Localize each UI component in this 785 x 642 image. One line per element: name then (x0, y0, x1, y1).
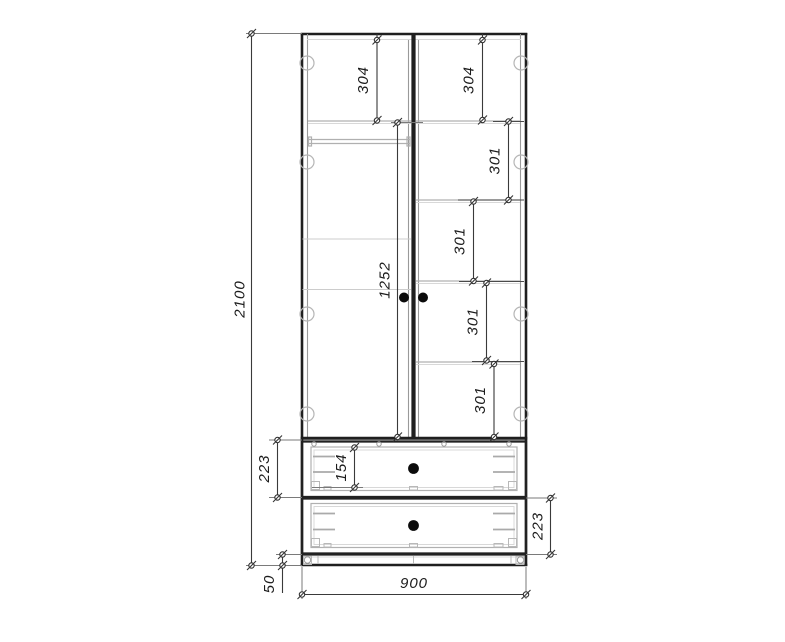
right-door-knob (418, 293, 428, 303)
dim-label-overall-height: 2100 (231, 280, 248, 318)
dim-label-top-drawer-height: 223 (256, 454, 273, 483)
dim-label-top-drawer-front: 154 (333, 453, 350, 481)
dim-top-drawer-height: 223 (256, 436, 302, 503)
wardrobe-technical-drawing: 2100 304 304 301 301 (0, 0, 785, 642)
dim-left-top-section: 304 (355, 34, 382, 125)
dim-right-section-2: 301 (451, 197, 524, 286)
foot-icon (304, 557, 310, 563)
dim-label-right-section-3: 301 (464, 307, 481, 335)
dim-right-section-3: 301 (464, 279, 524, 366)
dim-right-section-4: 301 (472, 360, 499, 442)
dim-overall-width: 900 (298, 567, 531, 599)
dim-door-height: 1252 (376, 118, 423, 442)
dim-label-bottom-drawer-height: 223 (529, 512, 546, 541)
drawing-canvas: 2100 304 304 301 301 (0, 0, 785, 642)
dim-label-plinth-height: 50 (261, 575, 278, 594)
bottom-drawer-knob (408, 520, 419, 531)
dim-label-left-top-section: 304 (355, 66, 372, 94)
corner-bracket (312, 539, 320, 547)
rod-bracket-left (309, 137, 312, 146)
dim-label-right-section-2: 301 (451, 227, 468, 255)
dim-label-right-section-1: 301 (486, 146, 503, 174)
dim-bottom-drawer-height: 223 (526, 494, 557, 560)
top-drawer-knob (408, 463, 419, 474)
corner-bracket (509, 539, 517, 547)
foot-icon (517, 557, 523, 563)
dim-label-right-section-4: 301 (472, 386, 489, 414)
left-compartment (303, 121, 412, 290)
left-door-knob (399, 293, 409, 303)
dim-right-top-section: 304 (460, 34, 487, 125)
corner-bracket (509, 482, 517, 490)
dim-label-overall-width: 900 (400, 575, 428, 592)
dim-overall-height: 2100 (231, 29, 302, 570)
dim-plinth-height: 50 (261, 550, 302, 593)
corner-bracket (312, 482, 320, 490)
plinth (301, 555, 528, 566)
dim-label-door-height: 1252 (376, 261, 393, 298)
bottom-drawer (302, 499, 526, 554)
dim-label-right-top-section: 304 (460, 66, 477, 94)
